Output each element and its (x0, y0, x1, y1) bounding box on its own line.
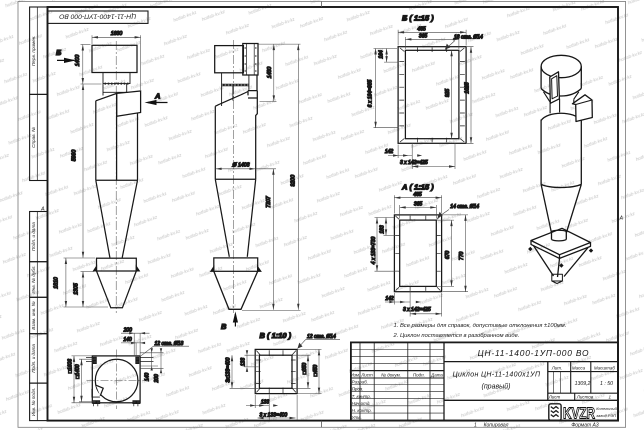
svg-text:Справ. №: Справ. № (31, 127, 36, 148)
svg-text:Взам. инв. №: Взам. инв. № (31, 301, 36, 329)
svg-text:Циклон ЦН-11-1400х1УП: Циклон ЦН-11-1400х1УП (453, 372, 541, 379)
svg-text:Инв. № дубл.: Инв. № дубл. (31, 265, 36, 293)
svg-text:Перв. примен.: Перв. примен. (31, 35, 36, 66)
svg-text:6 х 164=985: 6 х 164=985 (368, 79, 374, 107)
svg-text:Н. контр.: Н. контр. (352, 408, 372, 413)
svg-text:1 : 50: 1 : 50 (600, 381, 613, 387)
svg-text:Подп.: Подп. (413, 372, 425, 377)
svg-text:465: 465 (413, 192, 422, 198)
svg-text:Масштаб: Масштаб (594, 365, 615, 370)
svg-text:1025: 1025 (464, 82, 470, 93)
svg-text:365: 365 (414, 202, 423, 208)
svg-text:Копировал: Копировал (484, 423, 509, 429)
svg-text:Утв.: Утв. (352, 415, 362, 420)
svg-text:133: 133 (240, 358, 246, 367)
svg-text:1680: 1680 (111, 31, 123, 37)
svg-text:200: 200 (154, 374, 160, 384)
svg-text:365: 365 (419, 34, 428, 40)
svg-text:Нач.отд.: Нач.отд. (352, 401, 371, 406)
svg-text:№ докум.: № докум. (381, 372, 401, 377)
svg-text:133: 133 (261, 399, 270, 405)
svg-text:14 отв. Ø14: 14 отв. Ø14 (450, 204, 479, 210)
svg-text:Ø 1408: Ø 1408 (231, 163, 249, 169)
svg-text:Пров.: Пров. (352, 387, 364, 392)
svg-text:3х133=400: 3х133=400 (226, 357, 232, 382)
svg-text:(правый): (правый) (482, 383, 511, 391)
svg-text:В: В (221, 322, 227, 331)
svg-text:4 х 183=730: 4 х 183=730 (371, 236, 377, 264)
svg-text:Лист: Лист (548, 394, 561, 399)
svg-text:□350: □350 (302, 363, 308, 375)
svg-text:925: 925 (445, 89, 451, 98)
svg-text:Т. контр.: Т. контр. (352, 394, 371, 399)
svg-text:Б ( 1:15 ): Б ( 1:15 ) (402, 14, 434, 23)
svg-text:3 х 142=425: 3 х 142=425 (403, 307, 431, 313)
svg-text:□450: □450 (313, 365, 319, 377)
svg-text:В ( 1:10 ): В ( 1:10 ) (260, 331, 292, 340)
svg-text:7207: 7207 (266, 195, 272, 208)
svg-text:1810: 1810 (54, 277, 60, 289)
svg-text:Разраб.: Разраб. (352, 380, 368, 385)
svg-text:1309,2: 1309,2 (575, 381, 591, 387)
svg-text:140: 140 (145, 373, 151, 382)
svg-text:200: 200 (123, 328, 133, 334)
svg-text:465: 465 (417, 27, 426, 33)
svg-text:5990: 5990 (72, 150, 78, 162)
svg-text:1305: 1305 (74, 283, 80, 295)
svg-text:Лист: Лист (360, 372, 373, 377)
svg-text:Лит.: Лит. (551, 365, 563, 370)
svg-text:1. Все размеры для справок, до: 1. Все размеры для справок, допустимые о… (394, 323, 567, 329)
svg-text:142: 142 (385, 149, 394, 155)
svg-text:□1606: □1606 (67, 359, 73, 373)
svg-text:□1400: □1400 (75, 364, 81, 378)
svg-text:Дата: Дата (430, 372, 443, 377)
svg-text:А: А (154, 92, 160, 101)
svg-text:Копельный: Копельный (596, 406, 617, 411)
svg-text:А: А (619, 216, 624, 222)
svg-text:Подп. и дата: Подп. и дата (31, 222, 36, 251)
svg-text:183: 183 (380, 225, 386, 234)
svg-text:1480: 1480 (267, 67, 273, 79)
svg-text:1400: 1400 (75, 55, 81, 67)
svg-text:3 х 142=425: 3 х 142=425 (400, 160, 428, 166)
svg-text:12 отв. Ø18: 12 отв. Ø18 (155, 341, 184, 347)
svg-text:завод РЭП: завод РЭП (595, 413, 616, 418)
svg-text:140: 140 (123, 337, 132, 343)
svg-text:18 отв. Ø14: 18 отв. Ø14 (454, 35, 483, 41)
svg-text:Масса: Масса (572, 365, 586, 370)
svg-text:Изм.: Изм. (351, 372, 361, 377)
svg-text:Б: Б (56, 48, 62, 57)
svg-text:12 отв. Ø14: 12 отв. Ø14 (307, 334, 336, 340)
svg-text:2. Циклон поставляется в разоб: 2. Циклон поставляется в разобранном вид… (393, 333, 520, 339)
svg-text:670: 670 (445, 251, 451, 260)
svg-text:3 х 133=400: 3 х 133=400 (260, 413, 288, 419)
svg-text:770: 770 (459, 252, 465, 261)
svg-text:Листов: Листов (576, 394, 594, 399)
svg-text:ЦН-11-1400-1УП-000 ВО: ЦН-11-1400-1УП-000 ВО (58, 13, 136, 20)
svg-text:9200: 9200 (291, 175, 297, 187)
svg-text:Подп. и дата: Подп. и дата (31, 344, 36, 373)
svg-text:А ( 1:15 ): А ( 1:15 ) (401, 182, 434, 191)
svg-text:142: 142 (385, 296, 394, 302)
svg-text:Инв. № подл.: Инв. № подл. (31, 388, 36, 417)
svg-text:164: 164 (378, 50, 384, 59)
svg-text:А: А (40, 207, 45, 213)
svg-text:KVZR: KVZR (563, 406, 595, 423)
svg-text:1: 1 (474, 423, 477, 429)
svg-text:ЦН-11-1400-1УП-000 ВО: ЦН-11-1400-1УП-000 ВО (478, 348, 590, 358)
svg-text:Формат А3: Формат А3 (571, 423, 599, 429)
